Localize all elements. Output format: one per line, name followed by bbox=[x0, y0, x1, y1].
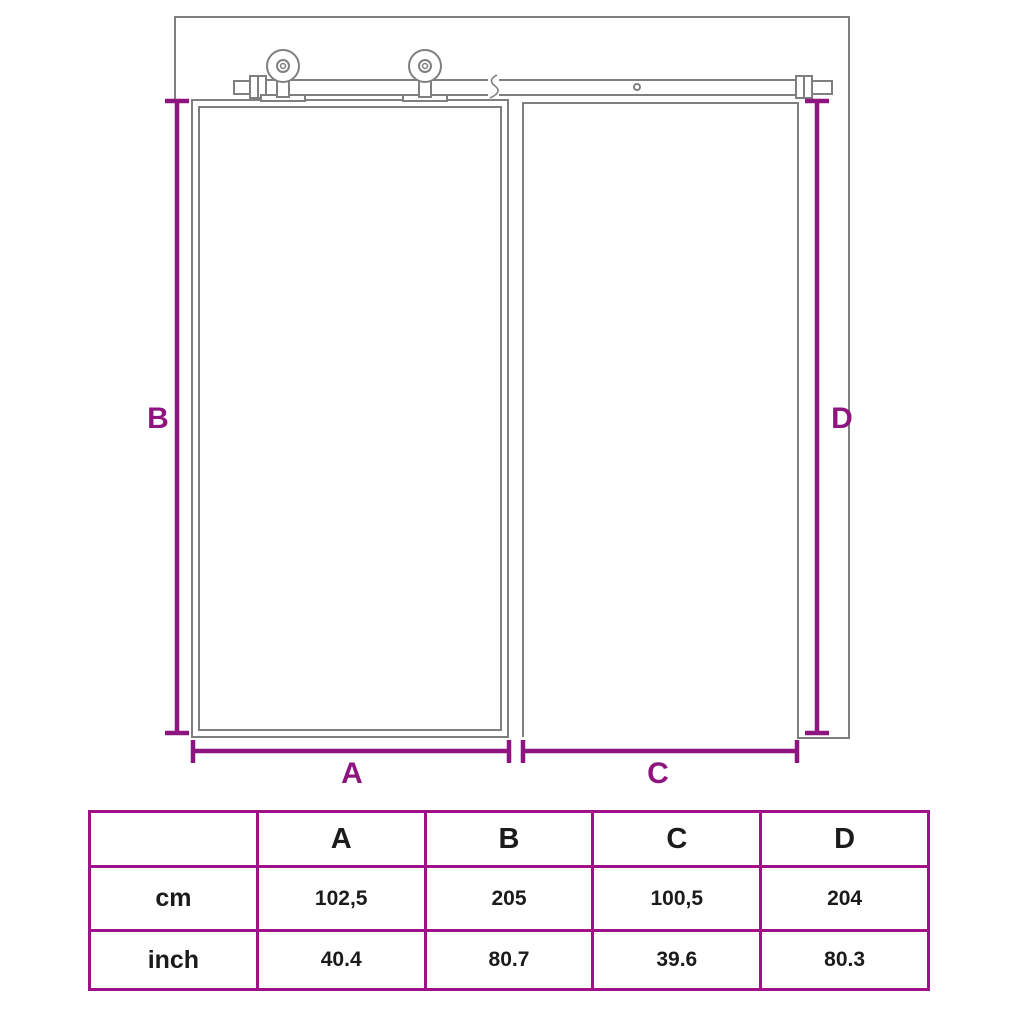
row-label-inch: inch bbox=[90, 931, 258, 990]
table-corner-cell bbox=[90, 812, 258, 867]
value-a-cm: 102,5 bbox=[257, 867, 425, 931]
dimension-a: A bbox=[193, 740, 509, 790]
sliding-rail bbox=[234, 75, 832, 98]
dimension-label-a: A bbox=[341, 757, 363, 790]
dimension-c: C bbox=[523, 740, 797, 790]
rail-end-bolt-left bbox=[234, 81, 250, 94]
dimension-label-d: D bbox=[831, 402, 853, 435]
table-col-header-b: B bbox=[425, 812, 593, 867]
value-c-inch: 39.6 bbox=[593, 931, 761, 990]
roller-hub bbox=[419, 60, 431, 72]
rail-end-stop-left-plate-1 bbox=[250, 76, 258, 98]
dimension-d: D bbox=[805, 101, 853, 733]
dimension-label-b: B bbox=[147, 402, 169, 435]
table-header-row: A B C D bbox=[90, 812, 929, 867]
value-a-inch: 40.4 bbox=[257, 931, 425, 990]
dimension-table: A B C D cm 102,5 205 100,5 204 inch 40.4… bbox=[88, 810, 930, 991]
roller-hub bbox=[277, 60, 289, 72]
rail-end-stop-right-plate-1 bbox=[796, 76, 804, 98]
row-label-cm: cm bbox=[90, 867, 258, 931]
product-dimension-sheet: B D A C A B bbox=[0, 0, 1024, 1024]
value-b-inch: 80.7 bbox=[425, 931, 593, 990]
value-b-cm: 205 bbox=[425, 867, 593, 931]
sliding-door-diagram: B D A C bbox=[0, 0, 1024, 800]
value-d-cm: 204 bbox=[761, 867, 929, 931]
rail-bar bbox=[266, 80, 796, 95]
value-d-inch: 80.3 bbox=[761, 931, 929, 990]
door-panel-outer bbox=[192, 100, 508, 737]
dimension-label-c: C bbox=[647, 757, 669, 790]
dimension-b: B bbox=[147, 101, 189, 733]
table-row-cm: cm 102,5 205 100,5 204 bbox=[90, 867, 929, 931]
rail-end-bolt-right bbox=[812, 81, 832, 94]
value-c-cm: 100,5 bbox=[593, 867, 761, 931]
table-row-inch: inch 40.4 80.7 39.6 80.3 bbox=[90, 931, 929, 990]
table-col-header-a: A bbox=[257, 812, 425, 867]
door-panel bbox=[192, 100, 508, 737]
rail-end-stop-right-plate-2 bbox=[804, 76, 812, 98]
table-col-header-c: C bbox=[593, 812, 761, 867]
table-col-header-d: D bbox=[761, 812, 929, 867]
